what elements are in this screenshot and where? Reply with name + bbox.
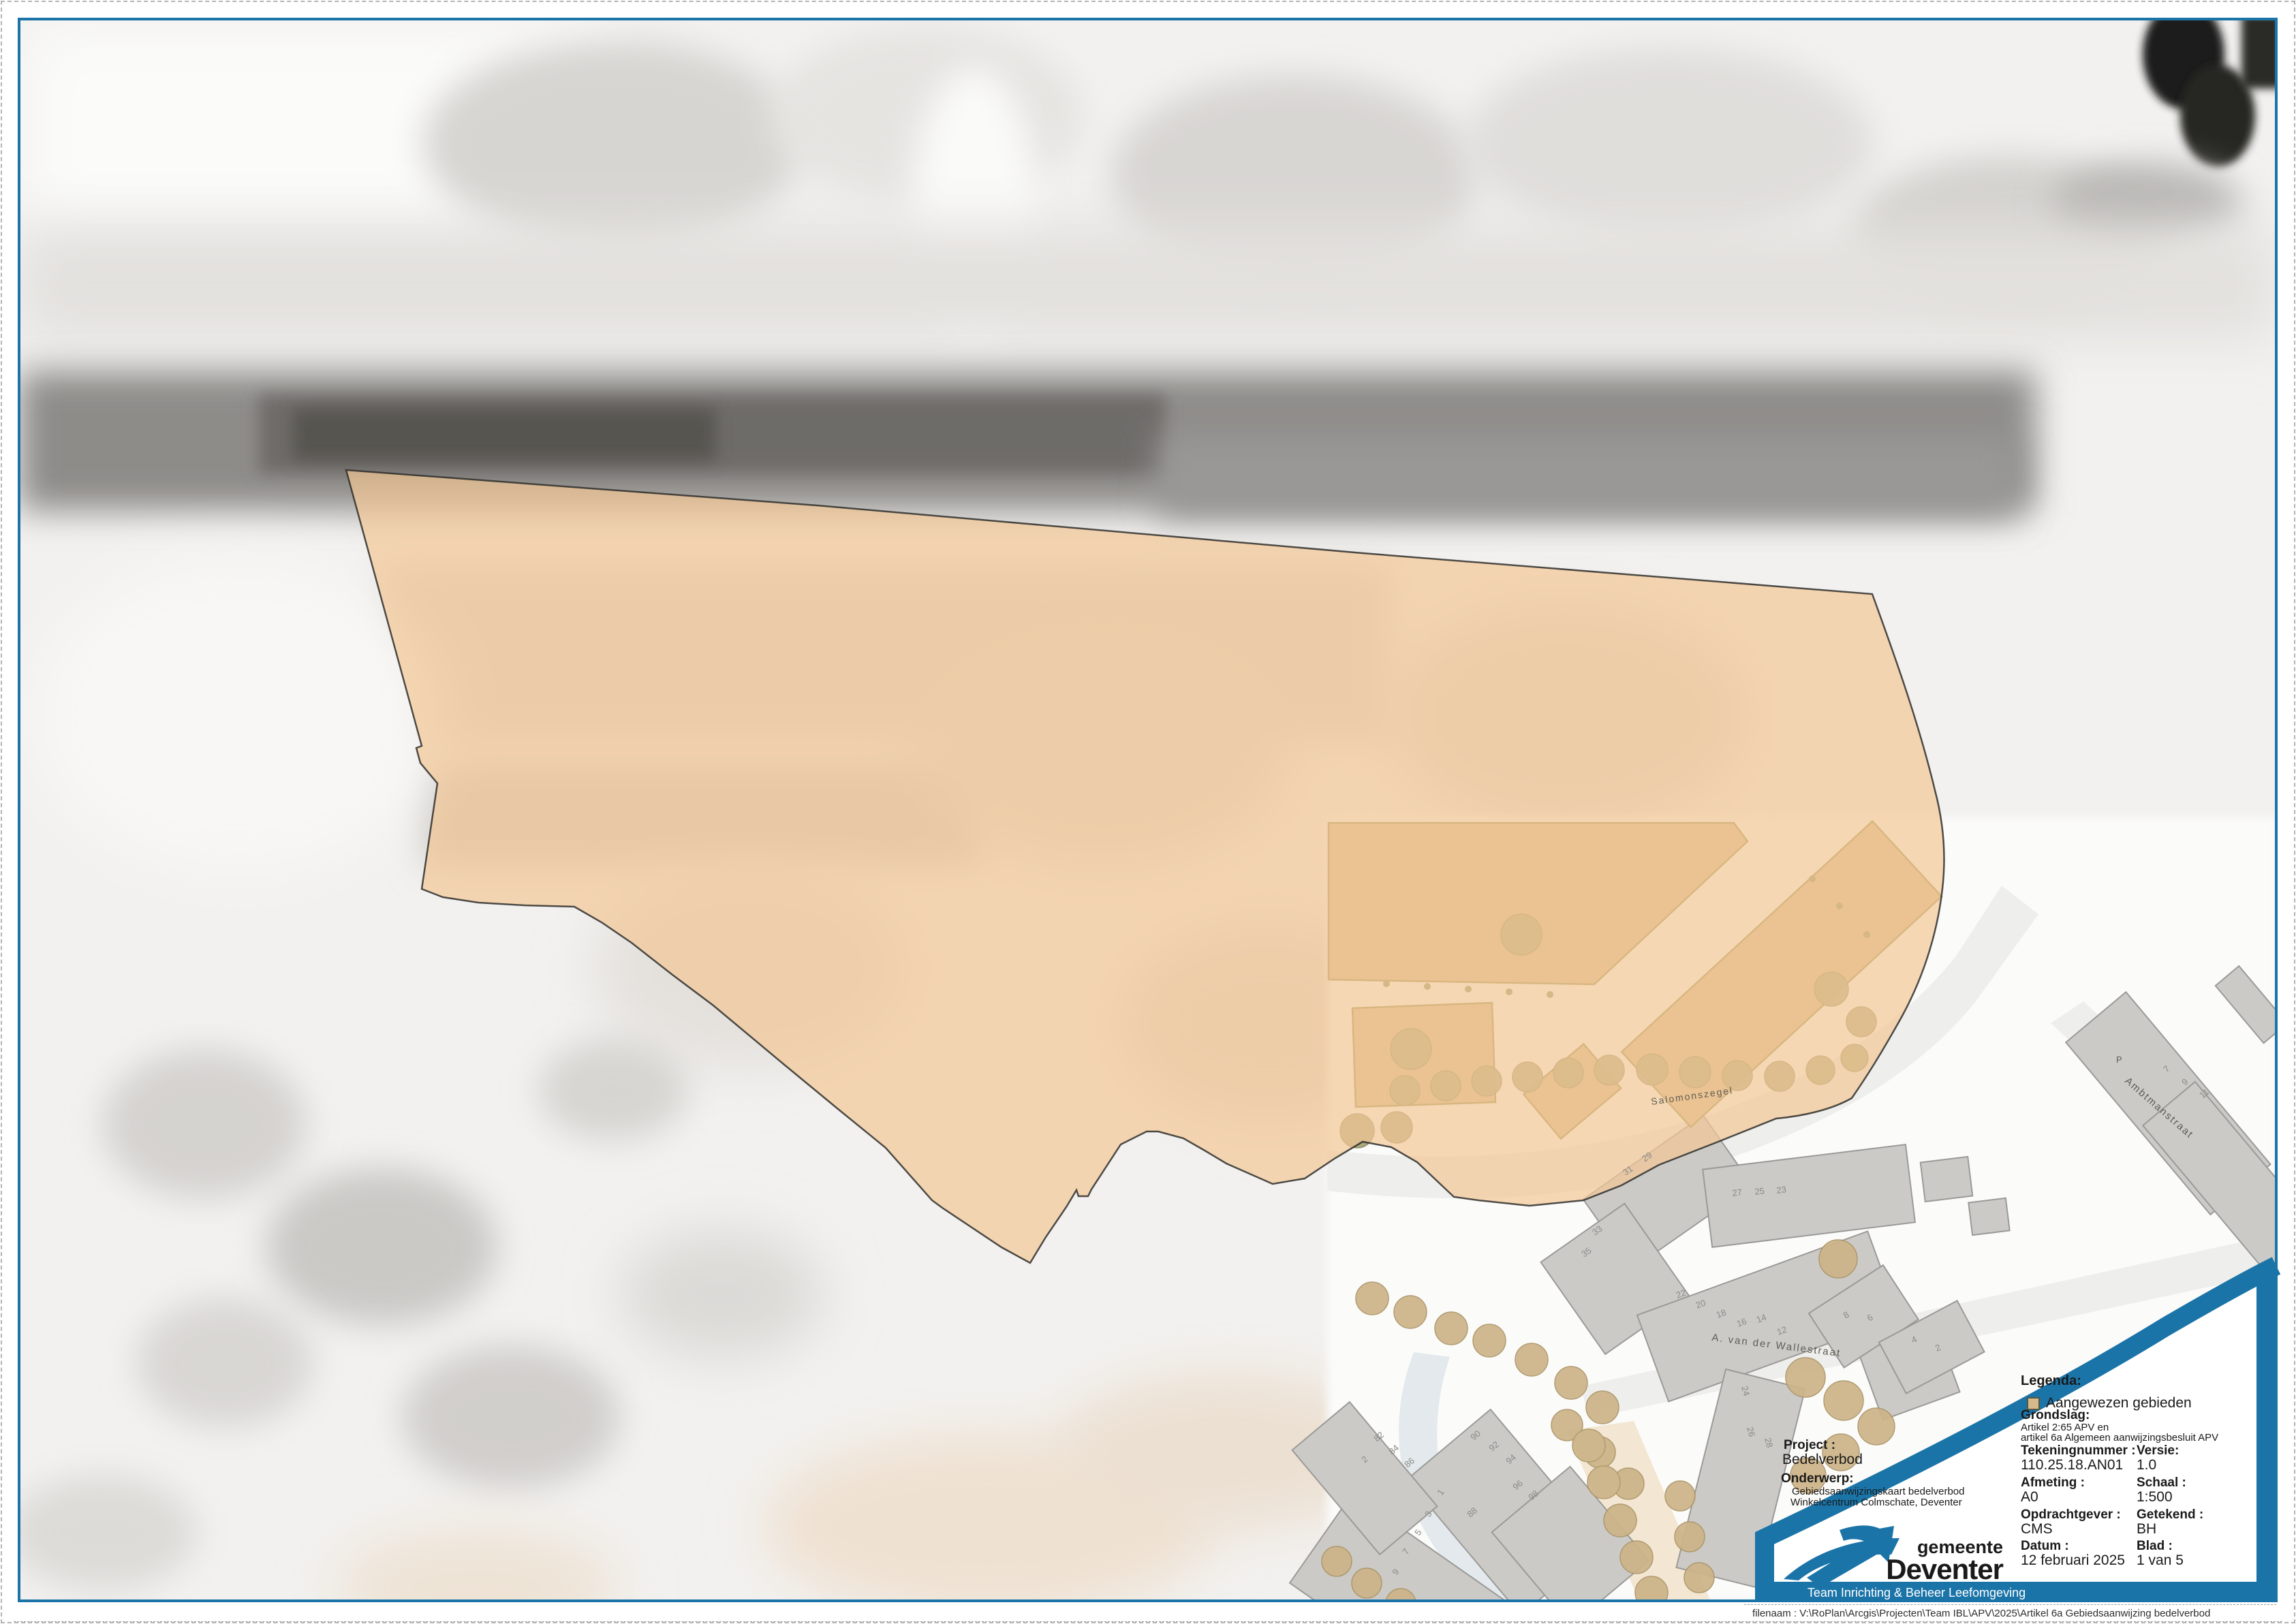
filename-text: filenaam : V:\RoPlan\Arcgis\Projecten\Te… xyxy=(1752,1608,2210,1619)
house-number: 23 xyxy=(1776,1184,1787,1196)
sheet-bottom-divider xyxy=(14,1621,2282,1622)
field-getekend-value: BH xyxy=(2137,1522,2156,1537)
house-number: 27 xyxy=(1732,1187,1743,1198)
legend-title: Legenda: xyxy=(2021,1373,2081,1389)
project-label: Project : xyxy=(1784,1439,1835,1452)
basis-label: Grondslag: xyxy=(2021,1409,2090,1422)
field-afmeting-value: A0 xyxy=(2021,1490,2038,1505)
field-tekeningnummer-value: 110.25.18.AN01 xyxy=(2021,1458,2123,1473)
subject-label: Onderwerp: xyxy=(1781,1472,1854,1486)
subject-line1: Gebiedsaanwijzingskaart bedelverbod xyxy=(1792,1486,1965,1497)
team-banner: Team Inrichting & Beheer Leefomgeving xyxy=(1765,1586,2068,1600)
house-number: 25 xyxy=(1754,1185,1765,1197)
subject-line2: Winkelcentrum Colmschate, Deventer xyxy=(1790,1497,1962,1508)
field-afmeting-label: Afmeting : xyxy=(2021,1476,2085,1490)
field-datum-value: 12 februari 2025 xyxy=(2021,1553,2125,1568)
field-opdrachtgever-value: CMS xyxy=(2021,1522,2053,1537)
field-versie-label: Versie: xyxy=(2137,1444,2179,1458)
field-getekend-label: Getekend : xyxy=(2137,1508,2203,1522)
field-versie-value: 1.0 xyxy=(2137,1458,2156,1473)
field-opdrachtgever-label: Opdrachtgever : xyxy=(2021,1508,2121,1522)
field-datum-label: Datum : xyxy=(2021,1540,2069,1553)
field-schaal-value: 1:500 xyxy=(2137,1490,2173,1505)
map-canvas: SalomonszegelA. van der WallestraatAmbtm… xyxy=(0,0,2296,1624)
basis-line2: artikel 6a Algemeen aanwijzingsbesluit A… xyxy=(2021,1432,2218,1443)
titleblock-right-bar xyxy=(2256,1266,2276,1602)
logo-deventer: Deventer xyxy=(1879,1555,2003,1584)
footer-divider xyxy=(1744,1604,2276,1605)
field-blad-label: Blad : xyxy=(2137,1540,2173,1553)
field-tekeningnummer-label: Tekeningnummer : xyxy=(2021,1444,2136,1458)
field-blad-value: 1 van 5 xyxy=(2137,1553,2184,1568)
map-sheet: SalomonszegelA. van der WallestraatAmbtm… xyxy=(0,0,2296,1624)
project-value: Bedelverbod xyxy=(1782,1452,1863,1467)
street-label: P xyxy=(2116,1055,2124,1065)
field-schaal-label: Schaal : xyxy=(2137,1476,2186,1490)
